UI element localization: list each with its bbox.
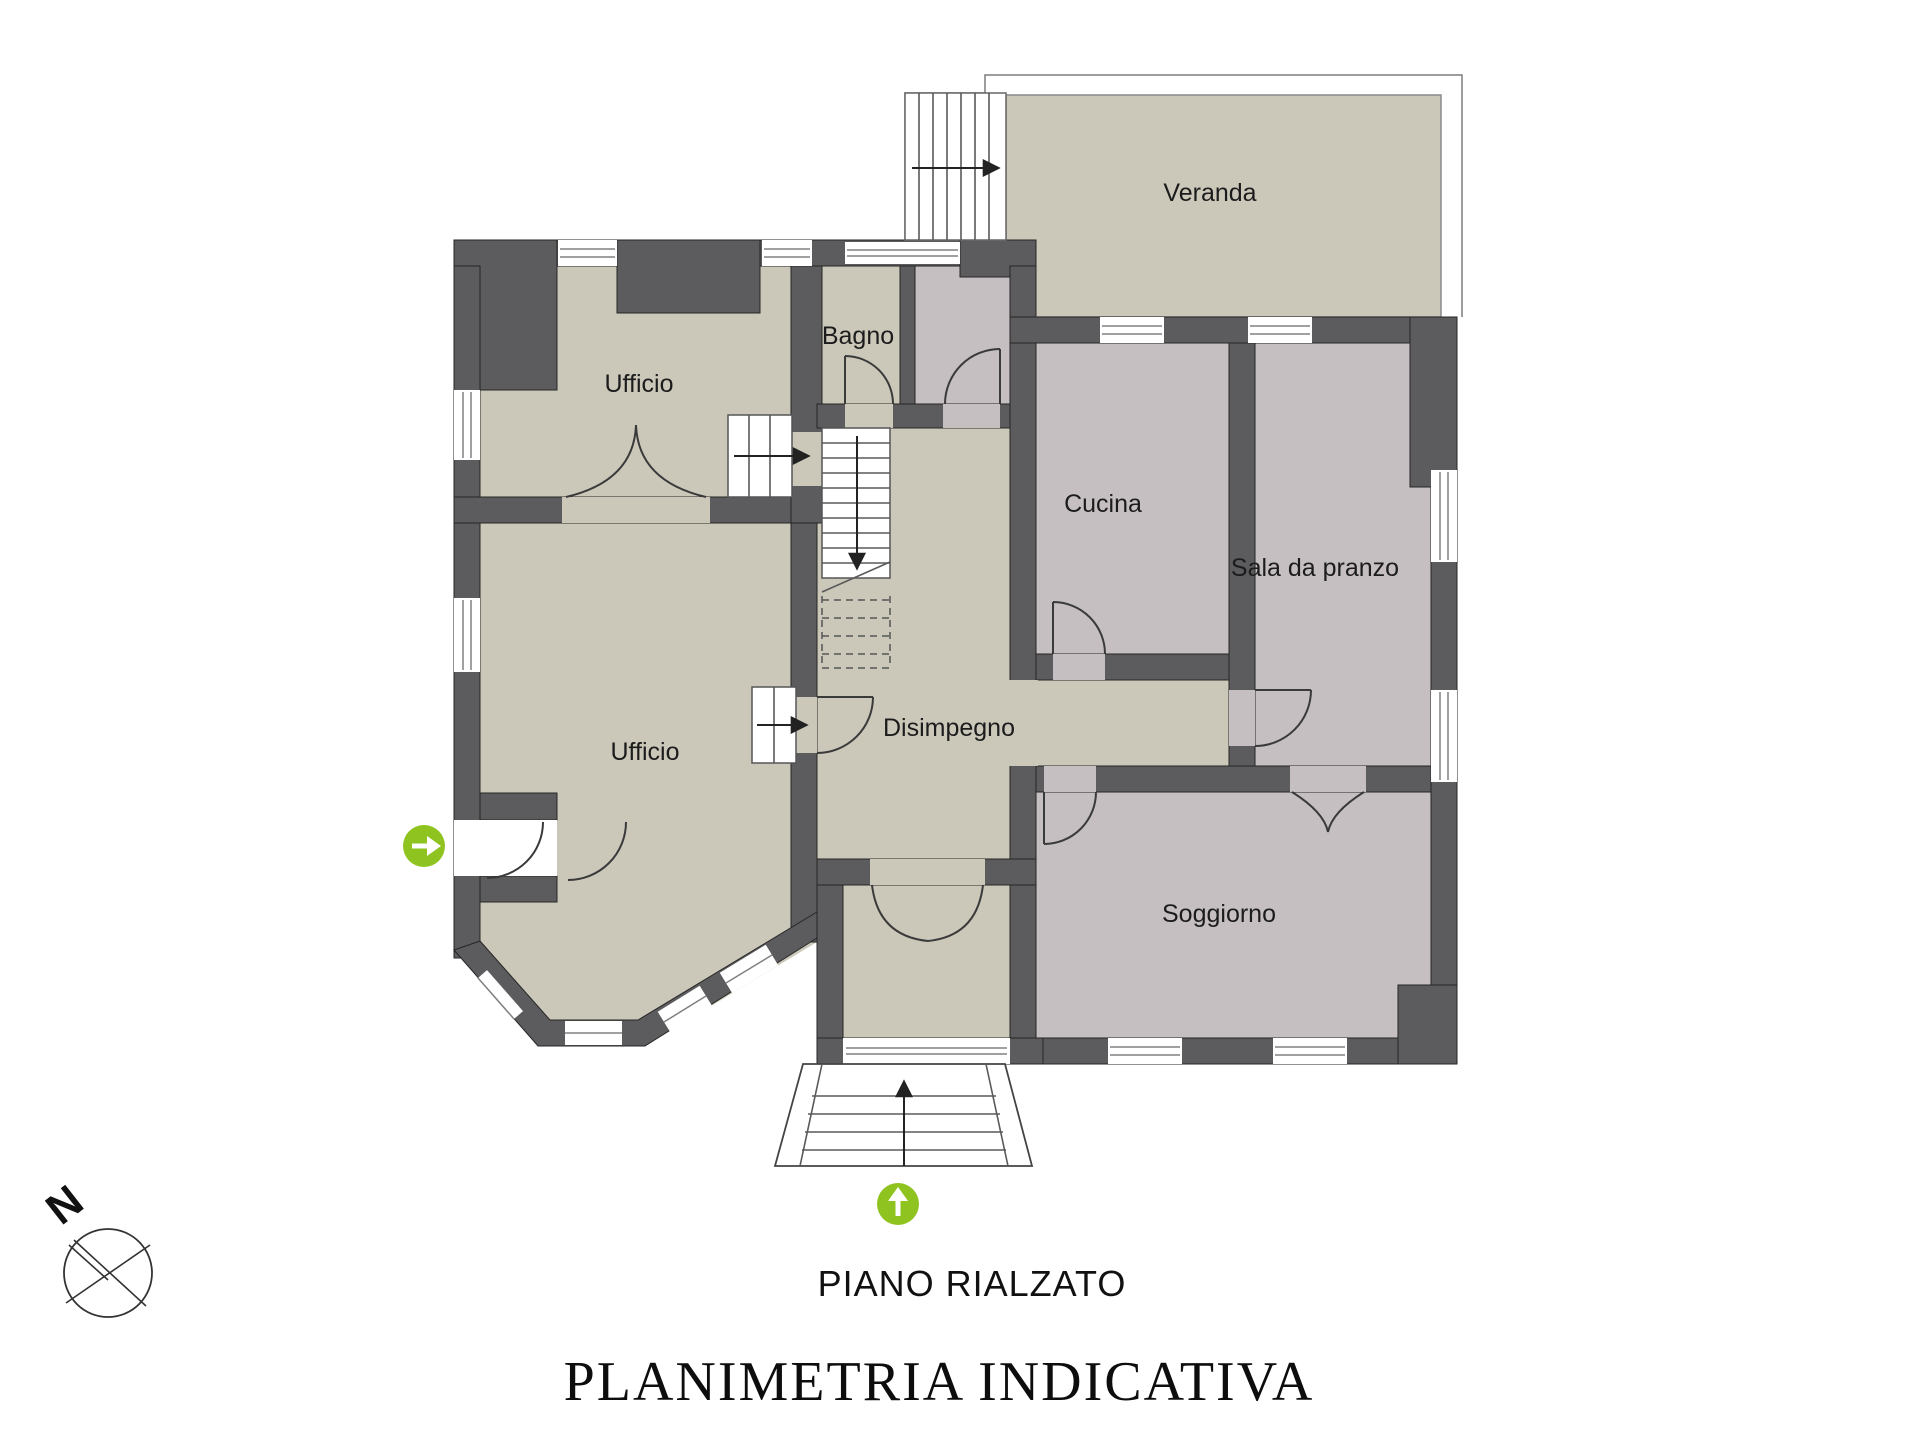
room-label-ufficio-nord: Ufficio [604,370,673,398]
room-label-disimpegno: Disimpegno [883,714,1015,742]
document-title: PLANIMETRIA INDICATIVA [564,1351,1315,1413]
floor-plan-drawing: N Veranda Bagno Ufficio Cucina Sala da p… [0,0,1920,1440]
front-entrance-stairs [775,1064,1032,1166]
side-entrance-arrow-icon [403,825,445,867]
room-label-ufficio-sud: Ufficio [610,738,679,766]
room-label-bagno: Bagno [822,322,894,350]
compass-north-label: N [37,1176,92,1234]
room-label-soggiorno: Soggiorno [1162,900,1276,928]
atrium-floor [817,859,1036,1064]
floor-title: PIANO RIALZATO [818,1263,1127,1304]
room-label-veranda: Veranda [1163,179,1256,207]
floor-plan-page: N Veranda Bagno Ufficio Cucina Sala da p… [0,0,1920,1440]
north-compass-icon: N [37,1176,152,1317]
veranda-exterior-stairs [905,93,1006,240]
room-label-cucina: Cucina [1064,490,1142,518]
room-label-sala-da-pranzo: Sala da pranzo [1231,554,1399,582]
front-entrance-arrow-icon [877,1183,919,1225]
titles: PIANO RIALZATO PLANIMETRIA INDICATIVA [564,1263,1315,1413]
